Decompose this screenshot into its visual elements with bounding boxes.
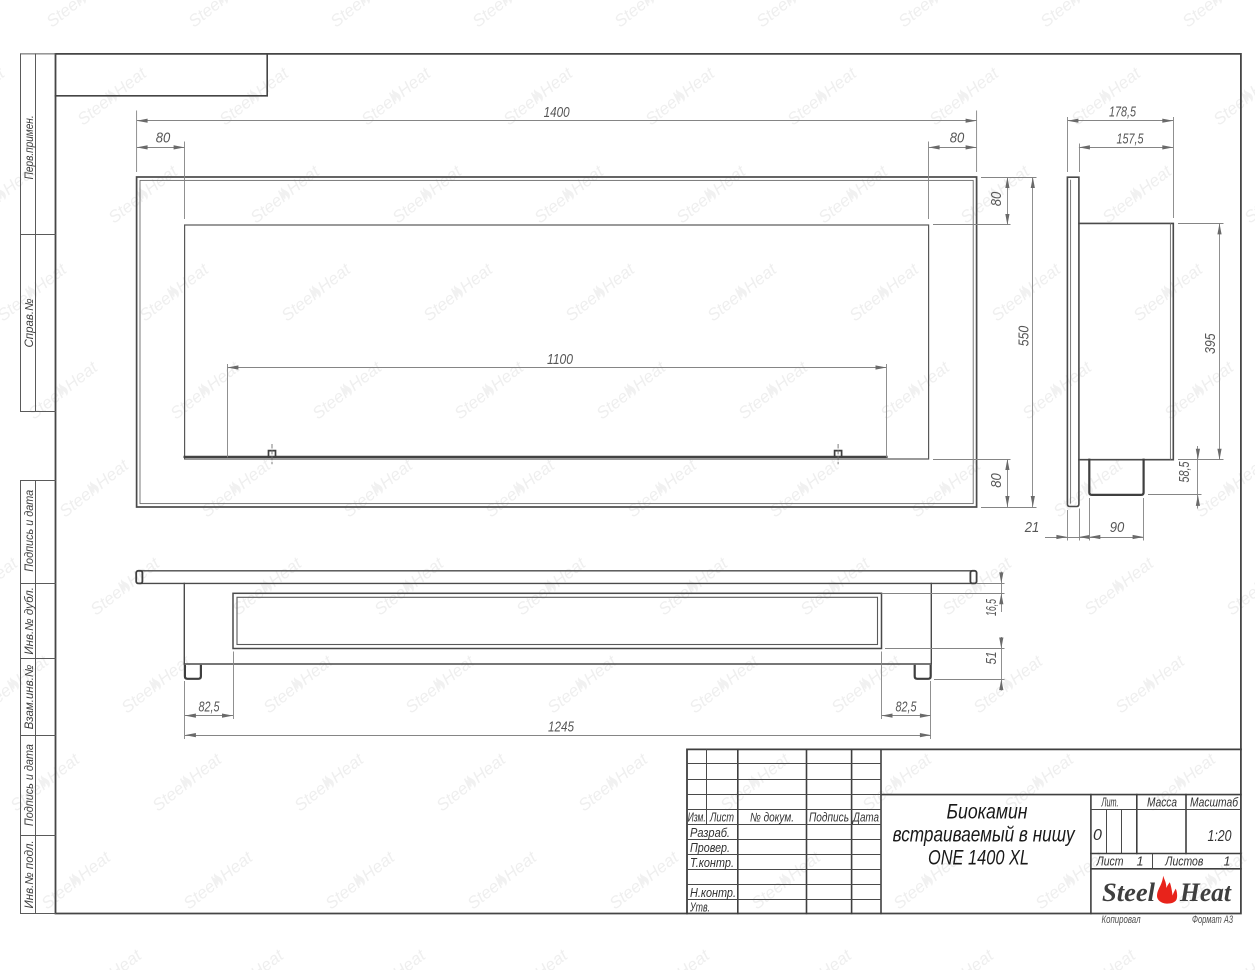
svg-text:Биокамин: Биокамин [947,801,1028,824]
svg-text:Перв.примен.: Перв.примен. [24,115,36,179]
svg-text:82,5: 82,5 [896,699,917,716]
svg-text:Лит.: Лит. [1101,796,1119,810]
svg-text:1: 1 [1224,855,1231,869]
svg-text:Подпись: Подпись [809,811,849,825]
svg-text:Heat: Heat [1179,878,1232,907]
svg-text:Масса: Масса [1147,796,1177,810]
svg-text:Справ.№: Справ.№ [24,298,36,348]
svg-text:16,5: 16,5 [983,599,1000,616]
svg-text:80: 80 [988,473,1005,488]
svg-text:Н.контр.: Н.контр. [690,886,736,900]
svg-text:395: 395 [1202,333,1219,354]
svg-text:0: 0 [1093,827,1102,844]
svg-text:90: 90 [1110,519,1125,536]
svg-text:80: 80 [156,130,171,147]
svg-text:Лист: Лист [1096,855,1124,869]
svg-text:Лист: Лист [709,811,734,825]
svg-text:80: 80 [988,191,1005,206]
svg-text:Подпись и дата: Подпись и дата [24,490,36,572]
svg-text:1245: 1245 [548,719,575,736]
svg-text:Утв.: Утв. [689,900,710,914]
svg-text:Изм.: Изм. [688,811,706,825]
svg-text:157,5: 157,5 [1117,131,1144,148]
svg-text:178,5: 178,5 [1109,104,1136,121]
svg-text:Steel: Steel [1102,878,1156,907]
svg-text:Инв.№ подл.: Инв.№ подл. [24,840,36,908]
svg-text:Подпись и дата: Подпись и дата [24,744,36,826]
svg-text:1400: 1400 [544,104,571,121]
svg-text:51: 51 [983,652,1000,665]
svg-text:1: 1 [1137,855,1144,869]
svg-text:1:20: 1:20 [1208,828,1232,845]
svg-text:Формат А3: Формат А3 [1192,914,1234,926]
svg-text:550: 550 [1016,325,1033,346]
svg-text:80: 80 [950,130,965,147]
svg-text:82,5: 82,5 [199,699,220,716]
svg-text:58,5: 58,5 [1176,461,1193,482]
svg-text:Дата: Дата [851,811,879,825]
svg-text:№ докум.: № докум. [750,811,794,825]
svg-text:встраиваемый в нишу: встраиваемый в нишу [893,824,1076,847]
svg-text:Масштаб: Масштаб [1190,796,1239,810]
svg-text:Копировал: Копировал [1102,914,1141,926]
svg-text:Провер.: Провер. [690,841,730,855]
svg-text:Т.контр.: Т.контр. [690,856,734,870]
svg-text:21: 21 [1024,519,1039,536]
svg-text:Листов: Листов [1164,855,1203,869]
svg-text:ONE 1400 XL: ONE 1400 XL [928,847,1029,870]
svg-text:Инв.№ дубл.: Инв.№ дубл. [24,587,36,655]
svg-text:Взам.инв.№: Взам.инв.№ [24,664,36,729]
svg-text:Разраб.: Разраб. [690,826,730,840]
svg-text:1100: 1100 [547,351,574,368]
